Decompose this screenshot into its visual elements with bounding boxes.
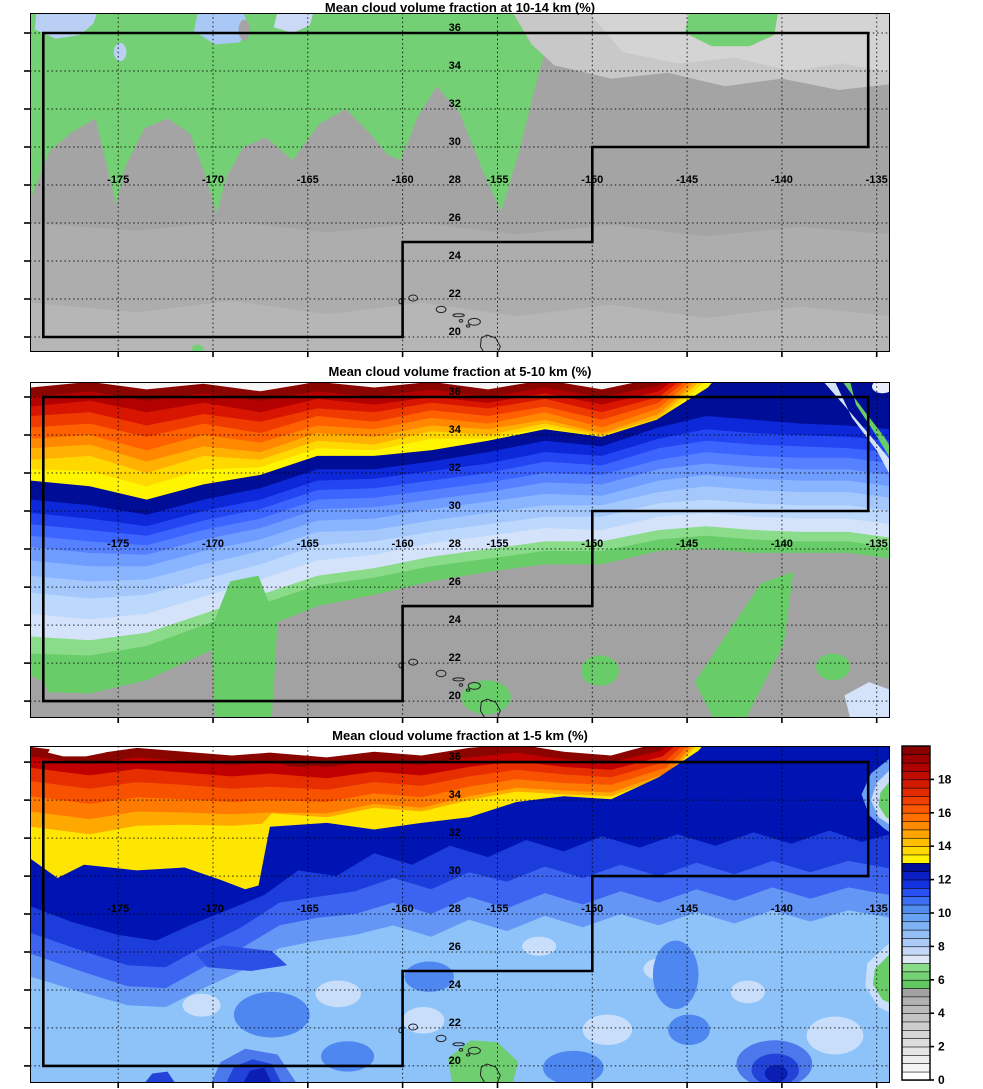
colorbar-tick-label: 14 (938, 839, 952, 853)
lon-tick-label: -170 (202, 538, 224, 550)
panel-title-5-10km: Mean cloud volume fraction at 5-10 km (%… (30, 364, 890, 379)
colorbar-segment (902, 1055, 930, 1064)
colorbar-segment (902, 905, 930, 914)
lat-tick-label: 32 (449, 827, 461, 839)
colorbar-segment (902, 871, 930, 880)
contour-patch (239, 20, 250, 41)
colorbar-segment (902, 754, 930, 763)
panel-10-14km: -175-170-165-160-155-150-145-140-1353634… (30, 0, 890, 356)
lon-tick-label: -175 (107, 174, 129, 186)
lon-tick-label: -140 (771, 174, 793, 186)
colorbar-segment (902, 1047, 930, 1056)
colorbar-segment (902, 980, 930, 989)
lat-tick-label: 20 (449, 326, 461, 338)
lat-tick-label: 32 (449, 98, 461, 110)
colorbar-segment (902, 946, 930, 955)
colorbar-segment (902, 830, 930, 839)
colorbar: 181614121086420 (902, 746, 952, 1087)
colorbar-segment (902, 988, 930, 997)
lon-tick-label: -170 (202, 174, 224, 186)
lat-tick-label: 30 (449, 136, 461, 148)
colorbar-segment (902, 855, 930, 864)
contour-patch (192, 345, 203, 355)
lat-tick-label: 26 (449, 941, 461, 953)
colorbar-tick-label: 8 (938, 939, 945, 953)
contour-patch (816, 654, 850, 681)
lat-tick-label: 24 (449, 614, 462, 626)
lat-tick-label: 28 (449, 174, 461, 186)
contour-patch (581, 656, 619, 686)
colorbar-tick-label: 18 (938, 772, 952, 786)
colorbar-segment (902, 746, 930, 755)
lon-tick-label: -175 (107, 903, 129, 915)
lat-tick-label: 30 (449, 865, 461, 877)
lat-tick-label: 34 (449, 60, 462, 72)
colorbar-tick-label: 4 (938, 1006, 945, 1020)
colorbar-segment (902, 863, 930, 872)
contour-patch (583, 1015, 632, 1045)
panel-title-1-5km: Mean cloud volume fraction at 1-5 km (%) (30, 728, 890, 743)
colorbar-segment (902, 1022, 930, 1031)
lat-tick-label: 28 (449, 903, 461, 915)
lon-tick-label: -170 (202, 903, 224, 915)
colorbar-segment (902, 1063, 930, 1072)
lon-tick-label: -165 (297, 174, 319, 186)
colorbar-segment (902, 930, 930, 939)
lon-tick-label: -165 (297, 538, 319, 550)
contour-patch (234, 992, 310, 1038)
contour-patch (731, 981, 765, 1004)
colorbar-segment (902, 938, 930, 947)
colorbar-tick-label: 2 (938, 1040, 945, 1054)
contour-patch (403, 1007, 445, 1034)
lon-tick-label: -155 (486, 538, 508, 550)
lat-tick-label: 30 (449, 500, 461, 512)
colorbar-segment (902, 880, 930, 889)
contour-patch (668, 1015, 710, 1045)
lon-tick-label: -155 (486, 174, 508, 186)
colorbar-segment (902, 788, 930, 797)
lat-tick-label: 24 (449, 979, 462, 991)
lat-tick-label: 22 (449, 652, 461, 664)
colorbar-segment (902, 763, 930, 772)
panel-title-10-14km: Mean cloud volume fraction at 10-14 km (… (30, 0, 890, 15)
contour-patch (653, 941, 699, 1009)
lat-tick-label: 32 (449, 462, 461, 474)
colorbar-segment (902, 913, 930, 922)
contour-patch (522, 937, 556, 956)
colorbar-segment (902, 1072, 930, 1081)
colorbar-segment (902, 955, 930, 964)
colorbar-tick-label: 12 (938, 873, 952, 887)
colorbar-segment (902, 997, 930, 1006)
lon-tick-label: -160 (392, 903, 414, 915)
lon-tick-label: -135 (866, 174, 888, 186)
lon-tick-label: -145 (676, 174, 698, 186)
colorbar-tick-label: 10 (938, 906, 952, 920)
colorbar-segment (902, 888, 930, 897)
colorbar-segment (902, 813, 930, 822)
contour-patch (461, 680, 510, 714)
lat-tick-label: 28 (449, 538, 461, 550)
lon-tick-label: -160 (392, 174, 414, 186)
colorbar-segment (902, 896, 930, 905)
colorbar-tick-label: 0 (938, 1073, 945, 1087)
panel-1-5km: -175-170-165-160-155-150-145-140-1353634… (30, 724, 890, 1089)
lat-tick-label: 34 (449, 424, 462, 436)
lon-tick-label: -160 (392, 538, 414, 550)
contour-patch (765, 1065, 788, 1082)
contour-patch (114, 43, 127, 61)
lat-tick-label: 34 (449, 789, 462, 801)
chart-svg: -175-170-165-160-155-150-145-140-1353634… (0, 0, 983, 1089)
contour-patch (807, 1017, 864, 1055)
lon-tick-label: -145 (676, 903, 698, 915)
lon-tick-label: -145 (676, 538, 698, 550)
colorbar-tick-label: 16 (938, 806, 952, 820)
lon-tick-label: -175 (107, 538, 129, 550)
colorbar-segment (902, 1005, 930, 1014)
contour-patch (315, 981, 361, 1008)
lat-tick-label: 22 (449, 1017, 461, 1029)
colorbar-segment (902, 804, 930, 813)
colorbar-tick-label: 6 (938, 973, 945, 987)
contour-patch (543, 1051, 604, 1085)
lon-tick-label: -135 (866, 903, 888, 915)
colorbar-segment (902, 963, 930, 972)
lon-tick-label: -135 (866, 538, 888, 550)
contour-patch (405, 962, 454, 992)
lon-tick-label: -155 (486, 903, 508, 915)
lon-tick-label: -140 (771, 538, 793, 550)
lon-tick-label: -140 (771, 903, 793, 915)
contour-patch (183, 994, 221, 1017)
colorbar-segment (902, 1030, 930, 1039)
colorbar-segment (902, 838, 930, 847)
lat-tick-label: 22 (449, 288, 461, 300)
lon-tick-label: -165 (297, 903, 319, 915)
colorbar-segment (902, 1038, 930, 1047)
lat-tick-label: 20 (449, 690, 461, 702)
colorbar-segment (902, 779, 930, 788)
colorbar-segment (902, 846, 930, 855)
lat-tick-label: 24 (449, 250, 462, 262)
colorbar-segment (902, 971, 930, 980)
colorbar-segment (902, 1013, 930, 1022)
colorbar-segment (902, 796, 930, 805)
cloud-fraction-figure: -175-170-165-160-155-150-145-140-1353634… (0, 0, 983, 1089)
colorbar-segment (902, 821, 930, 830)
lat-tick-label: 20 (449, 1055, 461, 1067)
lat-tick-label: 26 (449, 576, 461, 588)
colorbar-segment (902, 771, 930, 780)
colorbar-segment (902, 921, 930, 930)
lat-tick-label: 26 (449, 212, 461, 224)
